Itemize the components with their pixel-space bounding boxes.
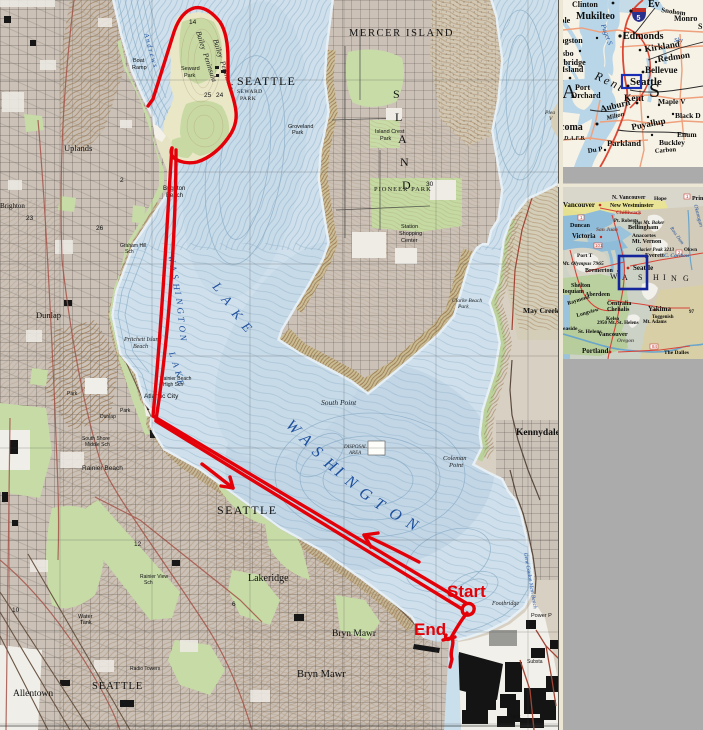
svg-text:Park: Park bbox=[120, 408, 131, 414]
svg-text:May Creek: May Creek bbox=[523, 306, 560, 315]
svg-text:coma: coma bbox=[560, 122, 583, 133]
svg-text:Dunlap: Dunlap bbox=[100, 414, 116, 420]
svg-text:Dunlap: Dunlap bbox=[36, 310, 61, 320]
svg-text:Victoria: Victoria bbox=[572, 233, 596, 240]
svg-text:C. Caribou: C. Caribou bbox=[664, 253, 689, 259]
svg-text:Tank: Tank bbox=[510, 714, 521, 720]
svg-text:SEATTLE: SEATTLE bbox=[92, 681, 143, 692]
svg-text:Sky: Sky bbox=[674, 37, 683, 44]
svg-text:Alas Mt. Baker: Alas Mt. Baker bbox=[632, 221, 664, 226]
svg-text:S: S bbox=[393, 87, 400, 101]
svg-text:Bryn Mawr: Bryn Mawr bbox=[332, 629, 377, 639]
svg-text:Ev: Ev bbox=[648, 0, 660, 10]
svg-text:30: 30 bbox=[426, 181, 434, 188]
svg-text:12: 12 bbox=[134, 541, 142, 548]
svg-text:D.A.F.B.: D.A.F.B. bbox=[563, 136, 586, 142]
svg-text:Island: Island bbox=[562, 65, 584, 74]
svg-text:101: 101 bbox=[595, 243, 603, 248]
svg-text:Park: Park bbox=[380, 136, 392, 142]
svg-text:sbo: sbo bbox=[562, 49, 574, 58]
svg-text:Monro: Monro bbox=[674, 14, 697, 23]
svg-text:Park: Park bbox=[67, 391, 78, 397]
svg-text:Duncan: Duncan bbox=[570, 223, 591, 229]
svg-text:Start: Start bbox=[447, 582, 486, 601]
svg-text:SEATTLE: SEATTLE bbox=[237, 74, 296, 88]
svg-text:Port T: Port T bbox=[577, 253, 593, 259]
svg-text:Mt. Vernon: Mt. Vernon bbox=[632, 239, 662, 245]
svg-text:Seattle: Seattle bbox=[633, 264, 653, 272]
svg-text:Mukilteo: Mukilteo bbox=[576, 11, 615, 22]
svg-text:South Point: South Point bbox=[321, 398, 357, 407]
svg-text:Mt. Adams: Mt. Adams bbox=[643, 320, 667, 325]
svg-text:Footbridge: Footbridge bbox=[491, 601, 519, 607]
svg-text:Maple V: Maple V bbox=[658, 97, 686, 106]
svg-text:Portland: Portland bbox=[582, 347, 609, 355]
svg-text:H: H bbox=[653, 273, 659, 282]
svg-text:Beach: Beach bbox=[133, 344, 148, 350]
svg-text:Parkland: Parkland bbox=[607, 138, 641, 148]
svg-text:23: 23 bbox=[26, 215, 34, 222]
svg-text:Coleman: Coleman bbox=[443, 455, 466, 462]
svg-text:ngston: ngston bbox=[560, 36, 583, 45]
svg-text:SEWARD: SEWARD bbox=[237, 89, 263, 95]
svg-text:S: S bbox=[638, 273, 642, 282]
svg-text:Station: Station bbox=[401, 224, 418, 230]
svg-text:Ramp: Ramp bbox=[132, 65, 147, 71]
svg-text:The Dalles: The Dalles bbox=[664, 350, 689, 356]
svg-text:SEATTLE: SEATTLE bbox=[217, 503, 277, 517]
svg-text:G: G bbox=[683, 274, 689, 283]
svg-text:N: N bbox=[671, 274, 677, 283]
svg-text:Tank: Tank bbox=[80, 620, 92, 626]
svg-text:25: 25 bbox=[204, 92, 212, 99]
svg-text:Rainier Beach: Rainier Beach bbox=[82, 465, 123, 472]
svg-text:I: I bbox=[663, 273, 666, 282]
svg-text:Park: Park bbox=[457, 304, 469, 310]
svg-text:97: 97 bbox=[689, 310, 695, 315]
svg-text:Lakeridge: Lakeridge bbox=[248, 573, 289, 584]
svg-text:Black D: Black D bbox=[675, 111, 701, 120]
svg-text:Substa: Substa bbox=[527, 659, 543, 665]
svg-text:High Sch: High Sch bbox=[163, 382, 184, 388]
svg-text:5: 5 bbox=[637, 15, 641, 22]
svg-text:Uplands: Uplands bbox=[64, 143, 92, 153]
svg-text:Shopping: Shopping bbox=[399, 231, 422, 237]
svg-text:Center: Center bbox=[401, 238, 418, 244]
svg-text:S: S bbox=[698, 22, 703, 31]
svg-text:6: 6 bbox=[232, 601, 236, 608]
svg-text:Park: Park bbox=[184, 73, 196, 79]
svg-text:PARK: PARK bbox=[240, 96, 256, 102]
svg-text:Oregon: Oregon bbox=[617, 338, 634, 344]
svg-text:2: 2 bbox=[120, 177, 124, 184]
svg-text:N: N bbox=[400, 155, 409, 169]
svg-text:New Westminster: New Westminster bbox=[610, 203, 654, 209]
svg-text:Sch: Sch bbox=[144, 580, 153, 586]
svg-text:MERCER ISLAND: MERCER ISLAND bbox=[349, 28, 454, 39]
svg-text:14: 14 bbox=[189, 19, 197, 26]
svg-text:L: L bbox=[395, 110, 402, 124]
svg-text:Boat: Boat bbox=[133, 58, 145, 64]
svg-text:Clinton: Clinton bbox=[572, 0, 598, 9]
svg-text:Sch: Sch bbox=[125, 249, 134, 255]
svg-text:Kelso: Kelso bbox=[606, 316, 619, 322]
svg-text:AREA: AREA bbox=[348, 451, 362, 456]
svg-text:Pritchett Island: Pritchett Island bbox=[123, 337, 162, 343]
svg-text:Power P: Power P bbox=[531, 613, 552, 619]
svg-text:A: A bbox=[622, 273, 628, 282]
svg-text:26: 26 bbox=[96, 225, 104, 232]
svg-text:Princ: Princ bbox=[692, 196, 703, 202]
svg-text:Vancouver: Vancouver bbox=[598, 331, 628, 338]
svg-text:Island Crest: Island Crest bbox=[375, 129, 405, 135]
svg-text:PIONEER PARK: PIONEER PARK bbox=[374, 186, 432, 193]
svg-text:Edmonds: Edmonds bbox=[623, 31, 664, 42]
svg-text:Yakima: Yakima bbox=[648, 305, 671, 313]
svg-text:24: 24 bbox=[216, 92, 224, 99]
svg-text:Brighton: Brighton bbox=[0, 202, 25, 210]
svg-text:Seward: Seward bbox=[181, 66, 200, 72]
svg-text:Allentown: Allentown bbox=[13, 689, 53, 699]
svg-text:Middle Sch: Middle Sch bbox=[85, 442, 110, 448]
svg-text:Bryn Mawr: Bryn Mawr bbox=[297, 669, 346, 680]
svg-text:W: W bbox=[610, 272, 618, 281]
svg-text:Hope: Hope bbox=[654, 196, 667, 202]
svg-text:S: S bbox=[649, 80, 660, 102]
svg-text:10: 10 bbox=[12, 607, 20, 614]
svg-text:Chilliwack: Chilliwack bbox=[616, 210, 642, 216]
svg-text:Bellevue: Bellevue bbox=[645, 65, 678, 75]
svg-text:Vancouver: Vancouver bbox=[563, 201, 595, 209]
svg-text:Point: Point bbox=[448, 462, 463, 469]
svg-text:Radio Towers: Radio Towers bbox=[130, 666, 161, 672]
svg-text:DISPOSAL: DISPOSAL bbox=[343, 445, 367, 450]
svg-text:84: 84 bbox=[652, 344, 658, 349]
svg-text:Park: Park bbox=[292, 130, 304, 136]
svg-text:A: A bbox=[562, 81, 577, 103]
svg-text:Chehalis: Chehalis bbox=[607, 307, 630, 313]
svg-text:End: End bbox=[414, 620, 446, 639]
svg-text:Mt. Olympus 7965: Mt. Olympus 7965 bbox=[561, 261, 604, 267]
svg-text:Atlantic City: Atlantic City bbox=[144, 393, 179, 400]
svg-text:San Juan: San Juan bbox=[596, 227, 618, 233]
svg-text:Kennydale: Kennydale bbox=[516, 428, 560, 438]
svg-text:N. Vancouver: N. Vancouver bbox=[612, 195, 646, 201]
svg-text:Hoquiam: Hoquiam bbox=[560, 289, 584, 295]
